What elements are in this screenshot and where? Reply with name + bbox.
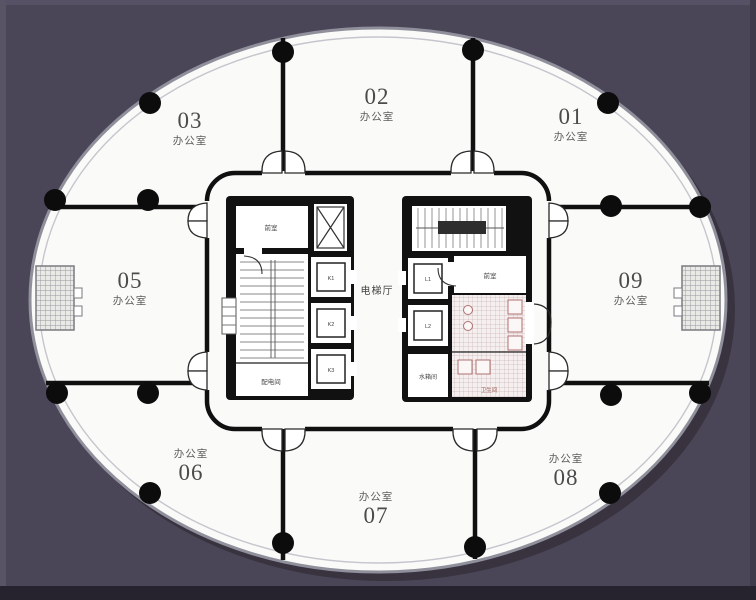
column [689, 382, 711, 404]
front-room-left-label: 前室 [265, 223, 279, 232]
lift-label: K1 [328, 276, 335, 282]
core-right-block [398, 196, 551, 402]
room-label-01: 01 办公室 [554, 104, 589, 143]
room-type: 办公室 [614, 294, 649, 307]
room-number: 08 [554, 465, 579, 490]
room-label-08: 办公室 08 [549, 452, 584, 490]
room-type: 办公室 [174, 447, 209, 460]
room-number: 03 [178, 108, 203, 133]
column [46, 382, 68, 404]
column [137, 189, 159, 211]
stair-rail [438, 221, 486, 234]
water-tank-room-label: 水箱间 [419, 373, 437, 381]
toilet-label: 卫生间 [481, 386, 498, 394]
column [139, 92, 161, 114]
column [689, 196, 711, 218]
column [600, 384, 622, 406]
room-type: 办公室 [173, 134, 208, 147]
vent-shaft [222, 298, 236, 334]
lift-label: K3 [328, 368, 335, 374]
room-label-06: 办公室 06 [174, 447, 209, 485]
room-label-09: 09 办公室 [614, 268, 649, 307]
column [600, 195, 622, 217]
column [137, 382, 159, 404]
room-type: 办公室 [554, 130, 589, 143]
column [597, 92, 619, 114]
room-number: 06 [179, 460, 204, 485]
column [44, 189, 66, 211]
room-number: 02 [365, 84, 390, 109]
room-label-03: 03 办公室 [173, 108, 208, 147]
room-label-07: 办公室 07 [359, 490, 394, 528]
column [272, 41, 294, 63]
lift-label: L1 [425, 277, 431, 283]
toilet-area [452, 295, 526, 397]
room-label-02: 02 办公室 [360, 84, 395, 123]
front-room-right-label: 前室 [484, 271, 498, 280]
core-left-block [222, 196, 357, 400]
room-type: 办公室 [359, 490, 394, 503]
column [272, 532, 294, 554]
column [464, 536, 486, 558]
column [462, 39, 484, 61]
room-number: 05 [118, 268, 143, 293]
room-number: 01 [559, 104, 584, 129]
lift-label: L2 [425, 324, 431, 330]
room-number: 09 [619, 268, 644, 293]
room-type: 办公室 [549, 452, 584, 465]
room-label-05: 05 办公室 [113, 268, 148, 307]
column [599, 482, 621, 504]
room-type: 办公室 [360, 110, 395, 123]
floor-plan-image: 01 办公室 02 办公室 03 办公室 05 办公室 办公室 06 办公室 0… [0, 0, 756, 600]
lift-label: K2 [328, 322, 335, 328]
elevator-hall-label: 电梯厅 [361, 284, 394, 297]
floor-plan-photo: 01 办公室 02 办公室 03 办公室 05 办公室 办公室 06 办公室 0… [0, 0, 756, 600]
room-number: 07 [364, 503, 389, 528]
room-type: 办公室 [113, 294, 148, 307]
column [139, 482, 161, 504]
electrical-room-label: 配电间 [261, 377, 281, 386]
